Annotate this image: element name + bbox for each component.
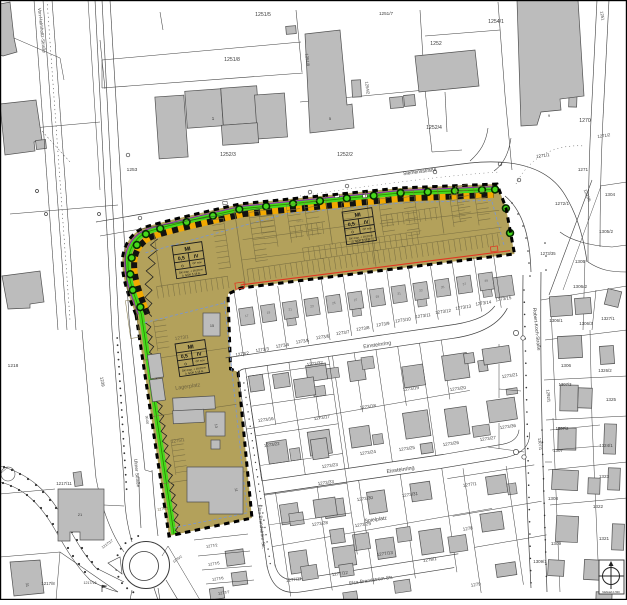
svg-text:1252: 1252: [430, 41, 442, 47]
svg-text:1306/1: 1306/1: [549, 318, 563, 323]
svg-text:0,5: 0,5: [181, 353, 189, 360]
svg-text:1273/35: 1273/35: [540, 251, 556, 256]
svg-text:1307: 1307: [553, 448, 563, 453]
svg-text:15: 15: [210, 324, 214, 328]
svg-text:1251/5: 1251/5: [255, 12, 271, 18]
svg-text:1271: 1271: [578, 167, 589, 172]
svg-text:1305/2: 1305/2: [599, 229, 613, 234]
svg-text:1304: 1304: [605, 192, 616, 197]
svg-text:1252/4: 1252/4: [426, 125, 442, 131]
svg-text:1324/1: 1324/1: [599, 443, 613, 448]
svg-text:1251/8: 1251/8: [224, 57, 240, 63]
svg-text:1306: 1306: [561, 363, 572, 368]
svg-text:1327/1: 1327/1: [601, 316, 615, 321]
svg-text:1308: 1308: [548, 496, 559, 501]
svg-text:1254/1: 1254/1: [488, 19, 504, 25]
svg-text:1270: 1270: [579, 118, 591, 124]
svg-text:1217/16: 1217/16: [84, 581, 97, 585]
svg-text:11: 11: [234, 488, 238, 492]
svg-text:1306/3: 1306/3: [579, 321, 593, 326]
svg-text:0,5: 0,5: [178, 255, 186, 262]
svg-text:1325: 1325: [606, 397, 617, 402]
svg-text:1218: 1218: [8, 363, 19, 369]
svg-text:1253: 1253: [127, 167, 138, 173]
svg-text:1251/7: 1251/7: [379, 11, 393, 16]
svg-text:1272/1: 1272/1: [555, 201, 569, 206]
svg-text:1306/2: 1306/2: [573, 284, 587, 289]
svg-text:13: 13: [214, 424, 218, 428]
svg-text:1321: 1321: [599, 536, 610, 541]
svg-text:21: 21: [78, 512, 83, 517]
svg-text:1322: 1322: [593, 504, 604, 509]
svg-text:31: 31: [25, 583, 29, 588]
svg-text:1217/11: 1217/11: [56, 481, 72, 486]
svg-text:1307/3: 1307/3: [559, 382, 572, 387]
svg-text:1252/3: 1252/3: [220, 152, 236, 158]
svg-text:1309: 1309: [551, 541, 562, 546]
svg-text:1252/2: 1252/2: [337, 152, 353, 158]
svg-text:0,5: 0,5: [348, 221, 356, 228]
svg-text:1323: 1323: [599, 474, 610, 479]
svg-text:1217/8: 1217/8: [41, 581, 55, 586]
svg-text:1326/2: 1326/2: [598, 368, 612, 373]
svg-text:1309/1: 1309/1: [533, 559, 547, 564]
svg-text:1305: 1305: [575, 259, 586, 264]
svg-text:Maßstab 1:500: Maßstab 1:500: [602, 590, 620, 594]
